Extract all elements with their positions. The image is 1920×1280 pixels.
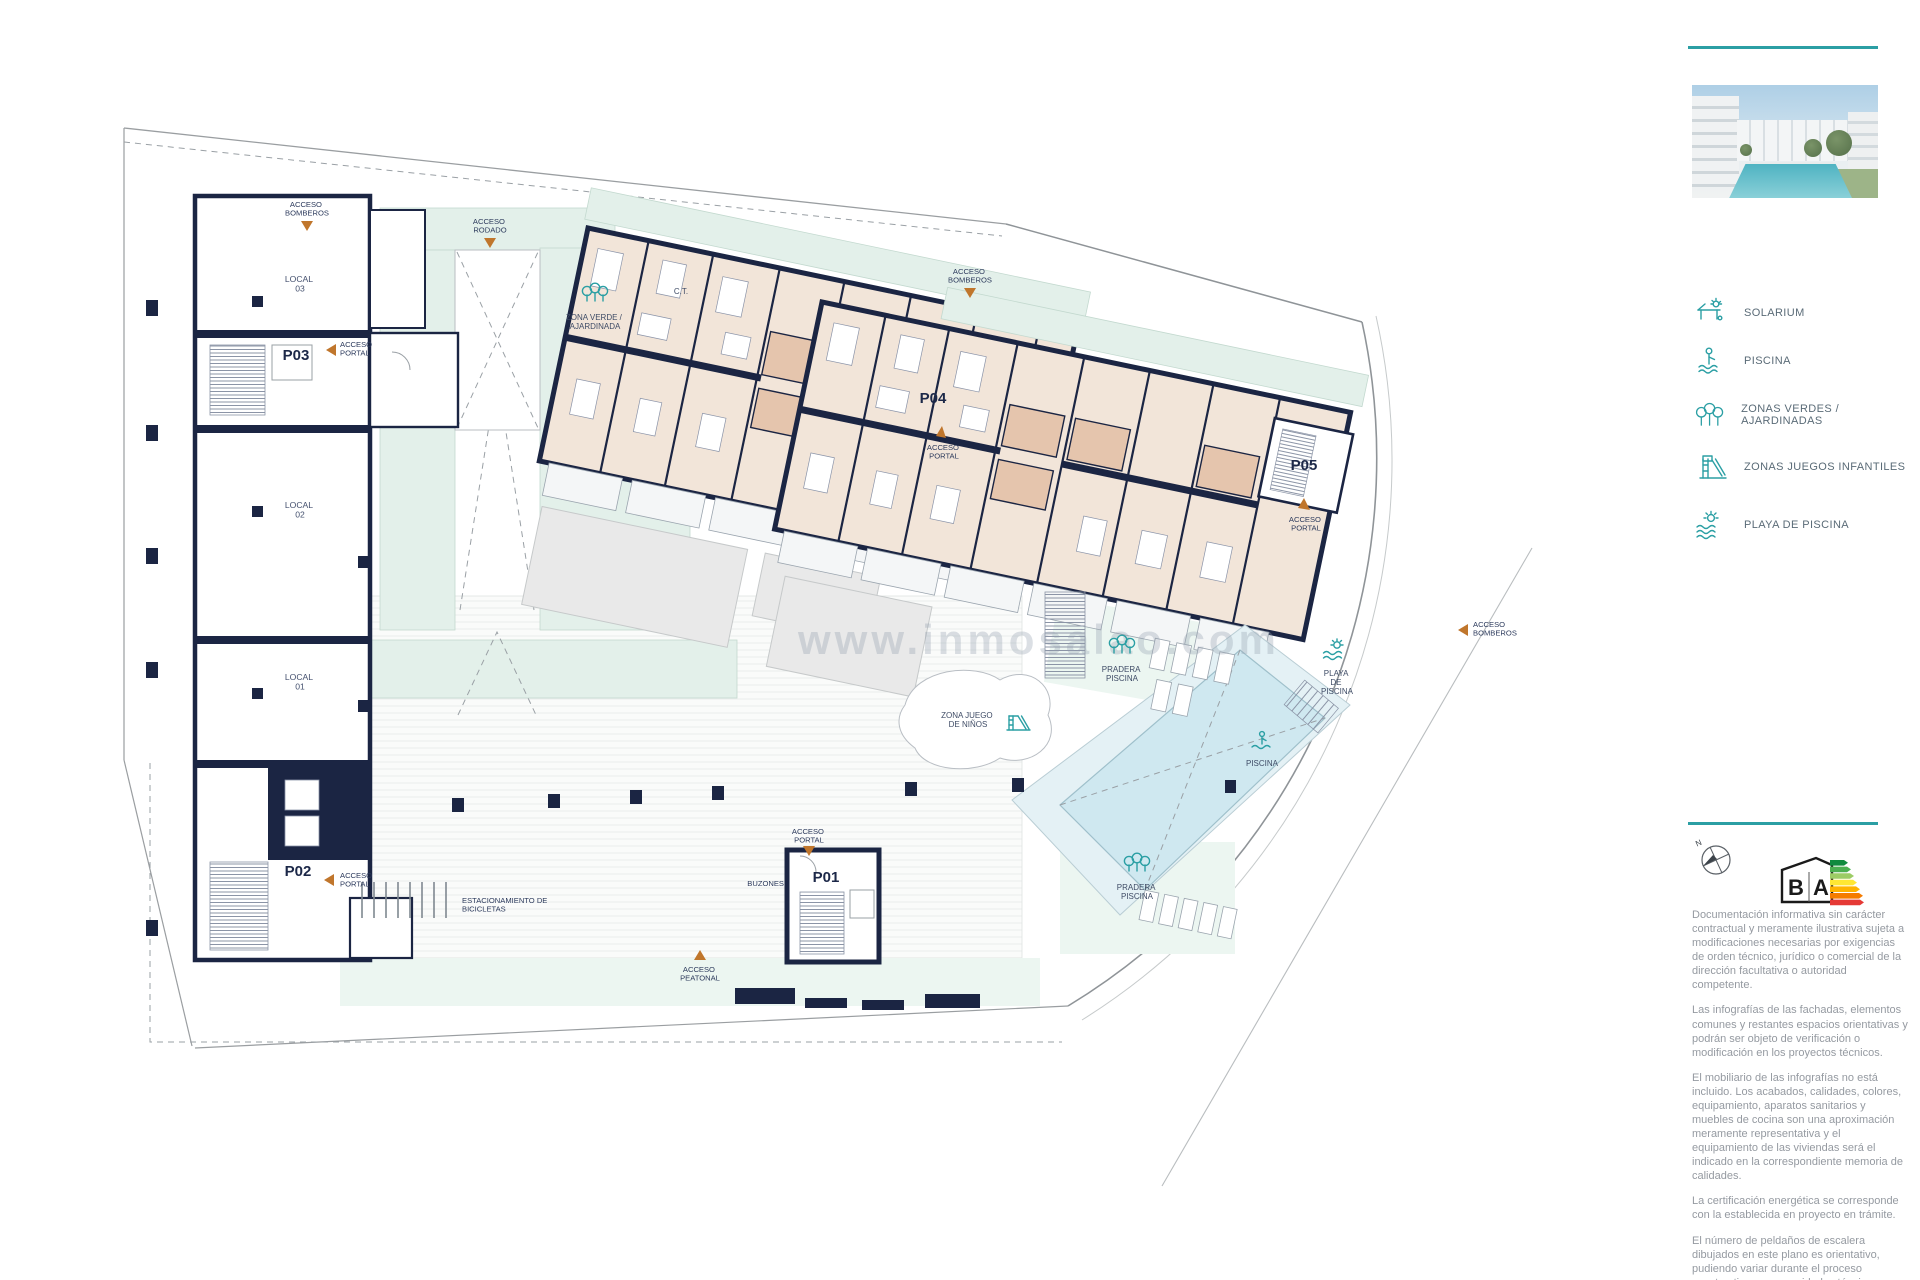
playa-piscina-icon [1694, 508, 1728, 542]
energy-letter-a: A [1813, 875, 1829, 900]
zona-juego-label: ZONA JUEGO DE NIÑOS [941, 711, 995, 729]
playa-piscina-icon [1324, 639, 1344, 660]
legal-disclaimer: Documentación informativa sin carácter c… [1692, 908, 1908, 1280]
acceso-rodado-label: ACCESO RODADO [473, 217, 507, 235]
portal-p04-label: P04 [920, 390, 947, 407]
energy-certificate-icon: B A [1774, 852, 1866, 908]
pradera-piscina-label: PRADERA PISCINA [1117, 883, 1157, 901]
energy-letter-b: B [1788, 875, 1804, 900]
legend-label: PLAYA DE PISCINA [1744, 519, 1849, 531]
zona-verde-label: ZONA VERDE / AJARDINADA [566, 313, 624, 331]
portal-p05-label: P05 [1291, 457, 1318, 474]
legend-label: PISCINA [1744, 355, 1791, 367]
solarium-icon [1694, 296, 1728, 330]
ct-label: C.T. [674, 287, 688, 296]
acceso-bomberos-label: ACCESO BOMBEROS [948, 267, 992, 285]
piscina-icon [1694, 344, 1728, 378]
energy-scale-bars [1830, 860, 1864, 905]
legend-item-piscina: PISCINA [1694, 344, 1791, 378]
buzones-label: BUZONES [747, 879, 784, 888]
acceso-portal-label: ACCESO PORTAL [340, 340, 374, 358]
site-plan-drawing: www.inmosalao.com ACCESO BOMBEROS ACCESO… [0, 0, 1920, 1280]
photo-tree [1826, 130, 1852, 156]
acceso-bomberos-label: ACCESO BOMBEROS [285, 200, 329, 218]
portal-p02-label: P02 [285, 863, 312, 880]
acceso-portal-label: ACCESO PORTAL [792, 827, 826, 845]
portal-p03-label: P03 [283, 347, 310, 364]
project-photo [1692, 85, 1878, 198]
site-plan-page: www.inmosalao.com ACCESO BOMBEROS ACCESO… [0, 0, 1920, 1280]
legend-label: SOLARIUM [1744, 307, 1805, 319]
compass-icon: N [1688, 834, 1740, 882]
disclaimer-paragraph: La certificación energética se correspon… [1692, 1194, 1908, 1222]
legend-item-solarium: SOLARIUM [1694, 296, 1805, 330]
legend-label: ZONAS VERDES / AJARDINADAS [1741, 403, 1908, 427]
photo-pool [1729, 162, 1852, 198]
acceso-portal-label: ACCESO PORTAL [1289, 515, 1323, 533]
zonas-verdes-icon [1694, 398, 1725, 432]
portal-p01-core [787, 850, 879, 962]
acceso-bomberos-label: ACCESO BOMBEROS [1473, 620, 1517, 638]
disclaimer-paragraph: El número de peldaños de escalera dibuja… [1692, 1234, 1908, 1280]
top-rule [1688, 46, 1878, 49]
juegos-infantiles-icon [1694, 450, 1728, 484]
watermark: www.inmosalao.com [797, 616, 1280, 663]
pradera-piscina-label: PRADERA PISCINA [1102, 665, 1142, 683]
disclaimer-paragraph: Documentación informativa sin carácter c… [1692, 908, 1908, 992]
legend-item-zonas-verdes: ZONAS VERDES / AJARDINADAS [1694, 398, 1908, 432]
access-marker-icon [1458, 624, 1468, 636]
disclaimer-paragraph: Las infografías de las fachadas, element… [1692, 1003, 1908, 1059]
bottom-rule [1688, 822, 1878, 825]
legend-item-playa: PLAYA DE PISCINA [1694, 508, 1849, 542]
disclaimer-paragraph: El mobiliario de las infografías no está… [1692, 1071, 1908, 1184]
portal-p01-label: P01 [813, 869, 840, 886]
photo-building-left [1692, 96, 1739, 186]
legend-label: ZONAS JUEGOS INFANTILES [1744, 461, 1905, 473]
compass-north-label: N [1694, 838, 1703, 849]
info-sidebar: SOLARIUM PISCINA ZONAS VERDES / AJARDINA… [1688, 0, 1908, 1280]
piscina-label: PISCINA [1246, 759, 1279, 768]
playa-piscina-label: PLAYA DE PISCINA [1321, 669, 1354, 696]
acceso-portal-label: ACCESO PORTAL [927, 443, 961, 461]
acceso-peatonal-label: ACCESO PEATONAL [680, 965, 720, 983]
acceso-portal-label: ACCESO PORTAL [340, 871, 374, 889]
legend-item-juegos: ZONAS JUEGOS INFANTILES [1694, 450, 1905, 484]
